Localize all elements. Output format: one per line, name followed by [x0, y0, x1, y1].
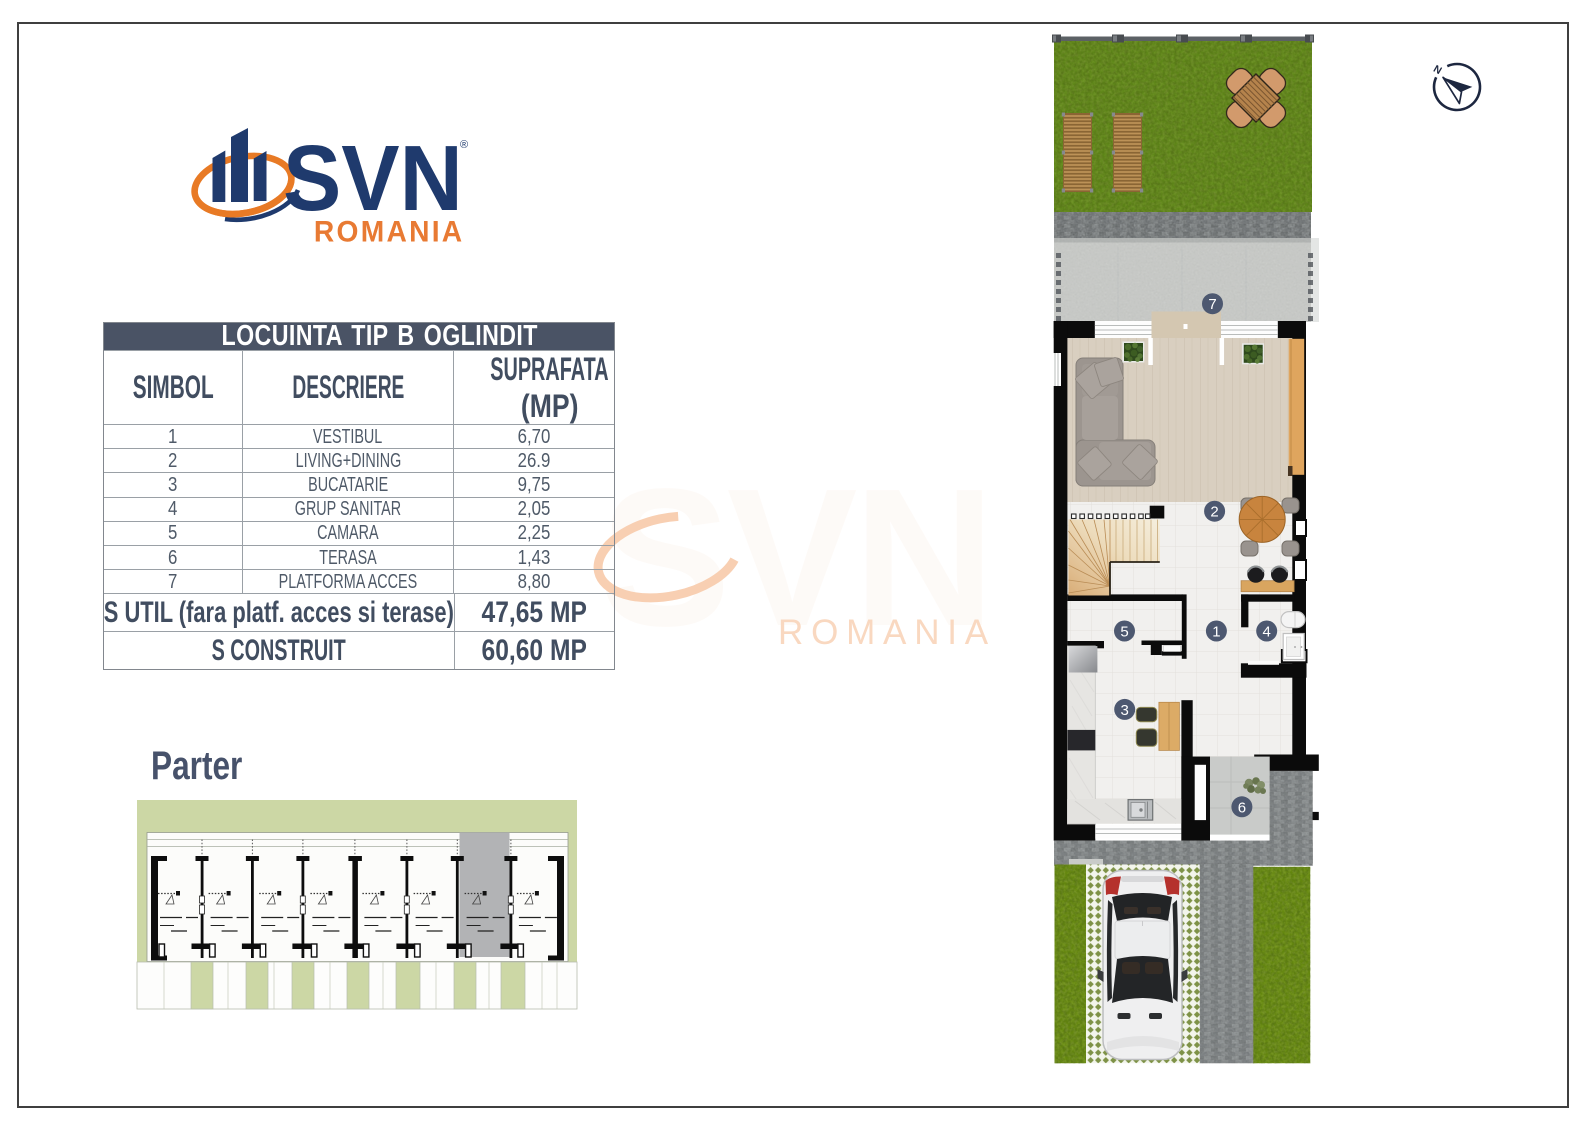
svg-text:5: 5	[1120, 624, 1128, 641]
svg-text:3: 3	[1121, 702, 1129, 719]
svg-text:ROMANIA: ROMANIA	[778, 613, 996, 652]
svg-text:1: 1	[1212, 624, 1220, 641]
svg-text:N: N	[1431, 63, 1444, 77]
svg-text:2: 2	[1210, 504, 1218, 521]
svg-text:ROMANIA: ROMANIA	[314, 216, 464, 249]
svg-text:®: ®	[460, 139, 468, 151]
svg-text:6: 6	[1238, 799, 1246, 816]
svg-text:7: 7	[1208, 296, 1216, 313]
svg-text:4: 4	[1263, 624, 1271, 641]
